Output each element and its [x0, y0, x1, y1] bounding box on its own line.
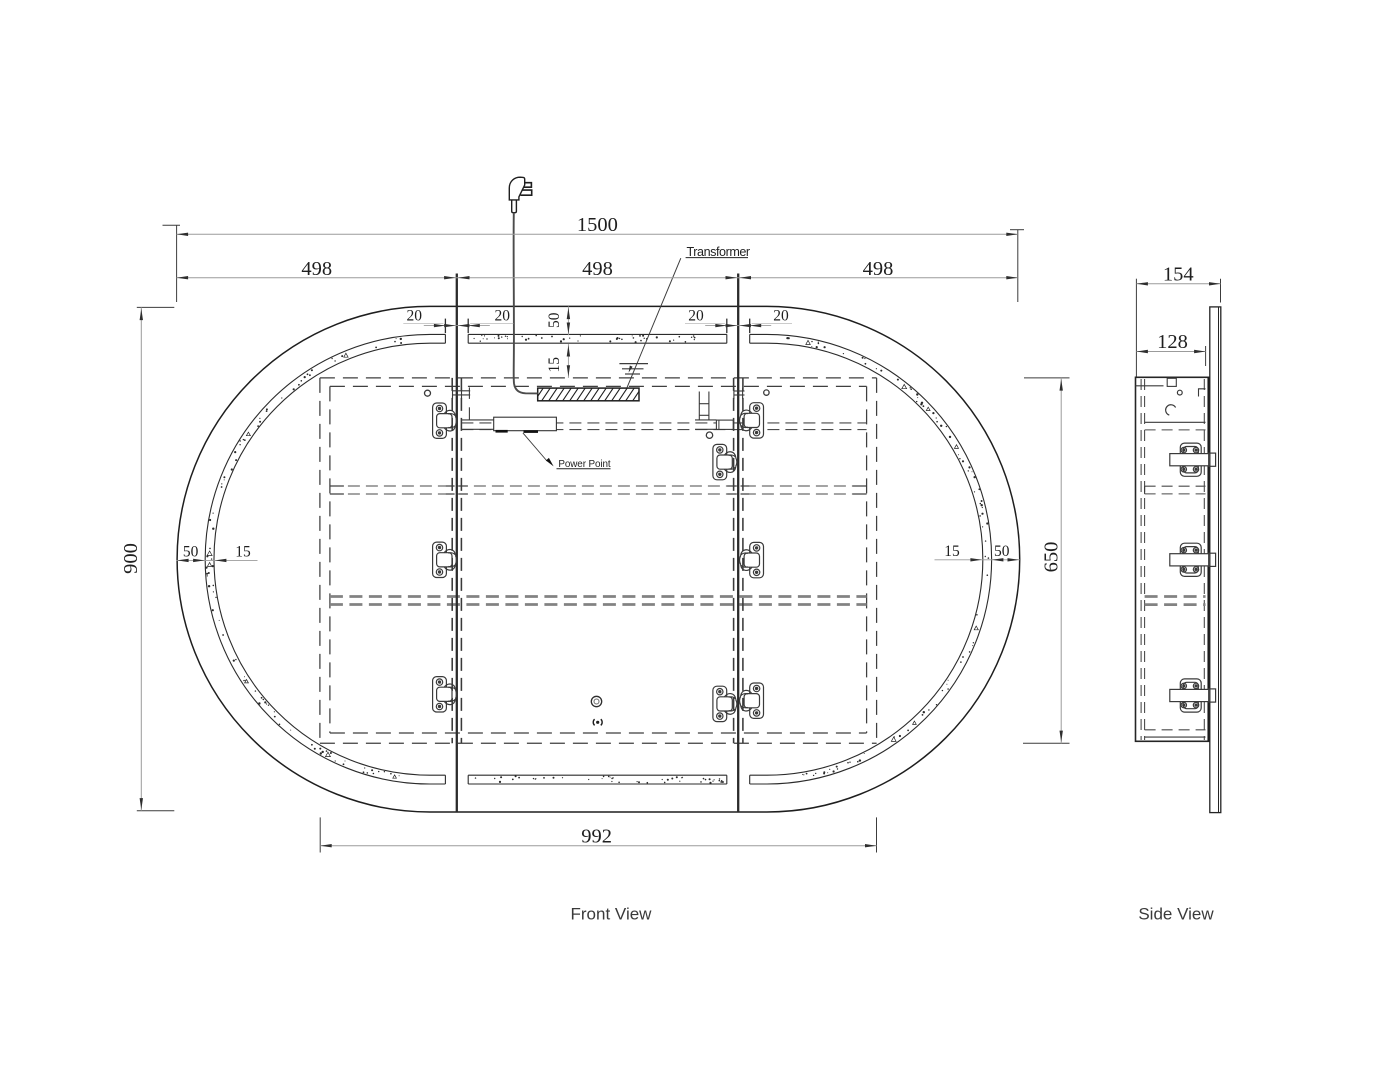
svg-text:128: 128 [1157, 331, 1188, 353]
svg-text:20: 20 [407, 308, 423, 325]
svg-text:1500: 1500 [577, 214, 618, 236]
svg-text:15: 15 [944, 543, 960, 560]
svg-text:650: 650 [1040, 542, 1062, 573]
svg-text:498: 498 [863, 258, 894, 280]
svg-text:50: 50 [994, 543, 1010, 560]
svg-text:Front View: Front View [571, 904, 653, 923]
svg-text:15: 15 [235, 543, 251, 560]
svg-text:20: 20 [495, 308, 511, 325]
svg-text:900: 900 [120, 543, 142, 574]
svg-text:20: 20 [688, 308, 704, 325]
svg-text:Side View: Side View [1138, 904, 1214, 923]
svg-text:498: 498 [301, 258, 332, 280]
svg-text:Transformer: Transformer [687, 245, 750, 259]
svg-text:498: 498 [582, 258, 613, 280]
svg-text:992: 992 [581, 826, 612, 848]
svg-text:15: 15 [546, 357, 563, 373]
svg-text:50: 50 [546, 312, 563, 328]
svg-text:50: 50 [183, 543, 199, 560]
svg-text:20: 20 [773, 308, 789, 325]
svg-text:154: 154 [1163, 264, 1194, 286]
svg-text:Power Point: Power Point [558, 459, 610, 470]
